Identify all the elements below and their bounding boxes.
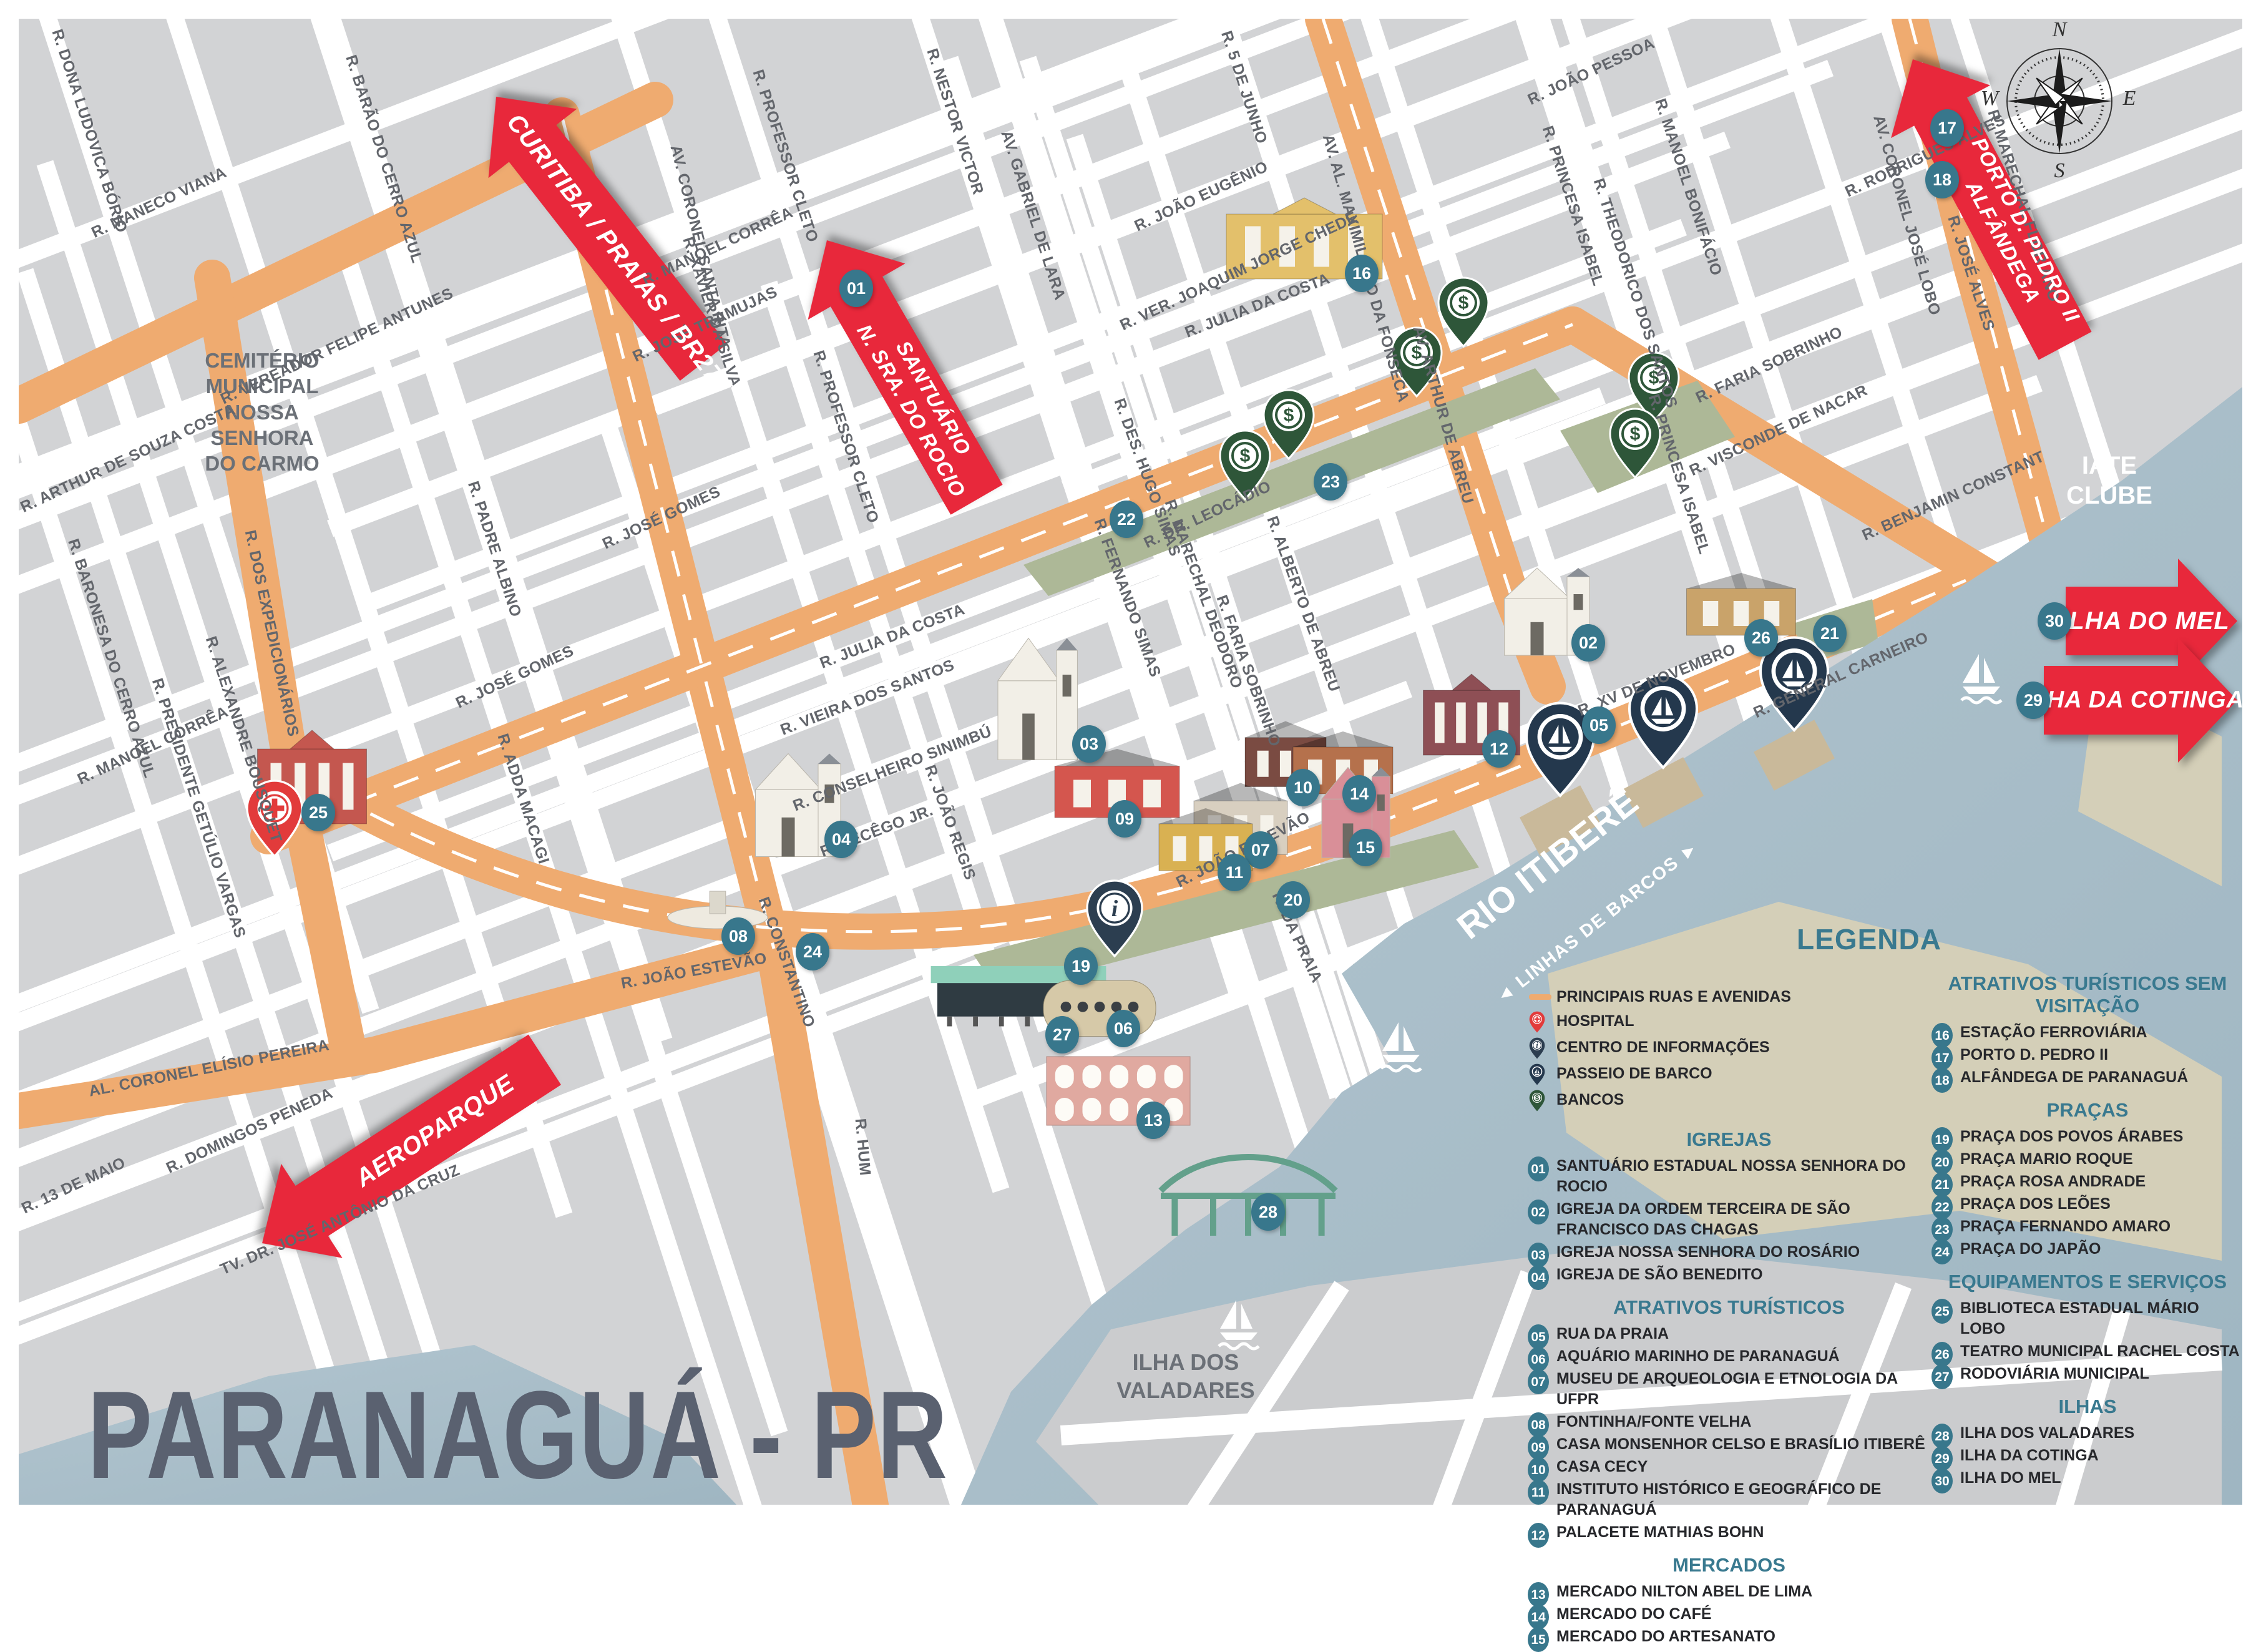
- legend-heading: MERCADOS: [1528, 1554, 1930, 1576]
- legend-item-label: CASA CECY: [1556, 1458, 1648, 1475]
- legend-item-12: 12PALACETE MATHIAS BOHN: [1528, 1522, 1930, 1543]
- marker-25: 25: [301, 794, 335, 831]
- road-icon: [1528, 992, 1556, 1001]
- legend-item-11: 11INSTITUTO HISTÓRICO E GEOGRÁFICO DE PA…: [1528, 1479, 1930, 1520]
- legend-item-label: ILHA DO MEL: [1960, 1469, 2061, 1487]
- legend-column-1: IGREJAS01SANTUÁRIO ESTADUAL NOSSA SENHOR…: [1528, 1117, 1930, 1649]
- legend-symbol-label: CENTRO DE INFORMAÇÕES: [1556, 1037, 1770, 1058]
- legend-symbol-label: HOSPITAL: [1556, 1010, 1634, 1032]
- legend-symbol-row: $BANCOS: [1528, 1087, 1927, 1112]
- legend-heading: IGREJAS: [1528, 1128, 1930, 1151]
- legend-item-number: 22: [1931, 1195, 1953, 1219]
- legend-item-19: 19PRAÇA DOS POVOS ÁRABES: [1931, 1127, 2244, 1147]
- marker-18: 18: [1925, 161, 1959, 198]
- legend-item-number: 30: [1931, 1469, 1953, 1493]
- legend-item-label: MUSEU DE ARQUEOLOGIA E ETNOLOGIA DA UFPR: [1556, 1370, 1897, 1408]
- marker-30: 30: [2038, 602, 2071, 640]
- marker-11: 11: [1218, 854, 1251, 891]
- legend-item-label: CASA MONSENHOR CELSO E BRASÍLIO ITIBERÊ: [1556, 1435, 1925, 1453]
- legend-item-29: 29ILHA DA COTINGA: [1931, 1445, 2244, 1466]
- legend-symbol-label: BANCOS: [1556, 1089, 1624, 1110]
- legend-item-number: 15: [1528, 1627, 1549, 1652]
- svg-text:N: N: [2052, 18, 2068, 41]
- marker-14: 14: [1342, 775, 1376, 813]
- legend-item-number: 13: [1528, 1582, 1549, 1607]
- legend-item-label: PRAÇA DO JAPÃO: [1960, 1240, 2101, 1258]
- legend-item-number: 25: [1931, 1299, 1953, 1324]
- svg-text:i: i: [1111, 896, 1118, 922]
- legend-item-number: 07: [1528, 1369, 1549, 1394]
- legend-item-label: ALFÂNDEGA DE PARANAGUÁ: [1960, 1068, 2188, 1086]
- paranagua-tourist-map: NESW$$$$$$i PARANAGUÁ - PR CEMITÉRIO MUN…: [0, 0, 2261, 1523]
- legend-item-label: MERCADO DO CAFÉ: [1556, 1605, 1712, 1623]
- info-icon: i: [1528, 1035, 1556, 1060]
- legend-item-label: TEATRO MUNICIPAL RACHEL COSTA: [1960, 1342, 2240, 1360]
- legend-item-number: 20: [1931, 1150, 1953, 1175]
- legend-item-number: 05: [1528, 1324, 1549, 1349]
- legend-item-label: PRAÇA DOS LEÕES: [1960, 1195, 2111, 1213]
- legend-item-label: PRAÇA DOS POVOS ÁRABES: [1960, 1128, 2183, 1145]
- legend-heading: EQUIPAMENTOS E SERVIÇOS: [1931, 1271, 2244, 1293]
- marker-03: 03: [1072, 725, 1106, 763]
- legend-heading: ATRATIVOS TURÍSTICOS: [1528, 1296, 1930, 1319]
- svg-text:$: $: [1284, 405, 1294, 426]
- legend-item-number: 03: [1528, 1243, 1549, 1268]
- legend-item-number: 04: [1528, 1265, 1549, 1290]
- map-title: PARANAGUÁ - PR: [87, 1364, 949, 1507]
- legend-item-14: 14MERCADO DO CAFÉ: [1528, 1604, 1930, 1625]
- legend-item-20: 20PRAÇA MARIO ROQUE: [1931, 1149, 2244, 1170]
- legend-item-number: 12: [1528, 1523, 1549, 1548]
- legend-item-09: 09CASA MONSENHOR CELSO E BRASÍLIO ITIBER…: [1528, 1434, 1930, 1455]
- legend-title: LEGENDA: [1797, 922, 1941, 956]
- legend-symbol-row: HOSPITAL: [1528, 1009, 1927, 1034]
- svg-text:$: $: [1240, 446, 1251, 466]
- legend-item-06: 06AQUÁRIO MARINHO DE PARANAGUÁ: [1528, 1346, 1930, 1367]
- legend-item-25: 25BIBLIOTECA ESTADUAL MÁRIO LOBO: [1931, 1298, 2244, 1339]
- legend-item-number: 16: [1931, 1023, 1953, 1048]
- legend-item-01: 01SANTUÁRIO ESTADUAL NOSSA SENHORA DO RO…: [1528, 1156, 1930, 1197]
- marker-26: 26: [1744, 619, 1778, 657]
- svg-text:$: $: [1535, 1095, 1539, 1102]
- legend-item-label: ILHA DA COTINGA: [1960, 1447, 2099, 1464]
- legend-symbol-label: PASSEIO DE BARCO: [1556, 1063, 1712, 1084]
- svg-text:$: $: [1630, 424, 1641, 444]
- marker-12: 12: [1482, 730, 1516, 768]
- legend-item-label: ESTAÇÃO FERROVIÁRIA: [1960, 1024, 2147, 1041]
- svg-text:i: i: [1536, 1041, 1538, 1050]
- legend-item-label: ILHA DOS VALADARES: [1960, 1424, 2134, 1442]
- legend-item-number: 29: [1931, 1446, 1953, 1471]
- legend-item-22: 22PRAÇA DOS LEÕES: [1931, 1194, 2244, 1215]
- legend-item-number: 24: [1931, 1239, 1953, 1264]
- legend-item-17: 17PORTO D. PEDRO II: [1931, 1045, 2244, 1065]
- arrow-label-ilha-da-cotinga: ILHA DA COTINGA: [2024, 685, 2244, 715]
- legend-item-label: RUA DA PRAIA: [1556, 1325, 1669, 1342]
- marker-28: 28: [1251, 1193, 1285, 1231]
- marker-17: 17: [1930, 109, 1964, 147]
- legend-item-label: IGREJA DE SÃO BENEDITO: [1556, 1266, 1763, 1283]
- legend-item-number: 28: [1931, 1424, 1953, 1449]
- legend-item-label: PRAÇA ROSA ANDRADE: [1960, 1173, 2146, 1190]
- marker-27: 27: [1045, 1016, 1079, 1053]
- hospital-icon: [1528, 1009, 1556, 1034]
- legend-symbols: PRINCIPAIS RUAS E AVENIDASHOSPITALiCENTR…: [1528, 985, 1927, 1113]
- legend-column-2: ATRATIVOS TURÍSTICOS SEM VISITAÇÃO16ESTA…: [1931, 961, 2244, 1490]
- legend-symbol-label: PRINCIPAIS RUAS E AVENIDAS: [1556, 986, 1791, 1007]
- legend-item-21: 21PRAÇA ROSA ANDRADE: [1931, 1171, 2244, 1192]
- legend-symbol-row: PRINCIPAIS RUAS E AVENIDAS: [1528, 986, 1927, 1007]
- legend-item-label: INSTITUTO HISTÓRICO E GEOGRÁFICO DE PARA…: [1556, 1480, 1881, 1518]
- marker-04: 04: [824, 821, 858, 858]
- legend-item-24: 24PRAÇA DO JAPÃO: [1931, 1239, 2244, 1259]
- marker-22: 22: [1110, 501, 1143, 538]
- legend-item-label: IGREJA NOSSA SENHORA DO ROSÁRIO: [1556, 1243, 1860, 1261]
- marker-01: 01: [839, 270, 873, 307]
- legend-item-number: 10: [1528, 1457, 1549, 1482]
- marker-21: 21: [1813, 615, 1847, 652]
- legend-item-label: IGREJA DA ORDEM TERCEIRA DE SÃO FRANCISC…: [1556, 1200, 1850, 1238]
- legend-item-08: 08FONTINHA/FONTE VELHA: [1528, 1412, 1930, 1432]
- legend-item-27: 27RODOVIÁRIA MUNICIPAL: [1931, 1364, 2244, 1384]
- marker-08: 08: [721, 917, 755, 955]
- marker-05: 05: [1582, 706, 1616, 744]
- legend-item-label: FONTINHA/FONTE VELHA: [1556, 1413, 1752, 1430]
- svg-text:$: $: [1458, 293, 1469, 313]
- marker-15: 15: [1349, 829, 1382, 866]
- legend-item-number: 18: [1931, 1068, 1953, 1093]
- svg-text:S: S: [2054, 159, 2065, 182]
- marker-23: 23: [1314, 463, 1347, 501]
- legend-item-label: MERCADO DO ARTESANATO: [1556, 1628, 1775, 1645]
- svg-text:W: W: [1981, 87, 2000, 110]
- marker-20: 20: [1276, 881, 1310, 919]
- legend-heading: PRAÇAS: [1931, 1099, 2244, 1122]
- legend-item-13: 13MERCADO NILTON ABEL DE LIMA: [1528, 1581, 1930, 1602]
- legend-item-04: 04IGREJA DE SÃO BENEDITO: [1528, 1264, 1930, 1285]
- legend-item-28: 28ILHA DOS VALADARES: [1931, 1423, 2244, 1444]
- legend-item-number: 08: [1528, 1412, 1549, 1437]
- legend-item-label: BIBLIOTECA ESTADUAL MÁRIO LOBO: [1960, 1299, 2199, 1337]
- legend-heading: ILHAS: [1931, 1395, 2244, 1418]
- marker-09: 09: [1108, 800, 1141, 838]
- legend-item-number: 21: [1931, 1172, 1953, 1197]
- legend-item-10: 10CASA CECY: [1528, 1457, 1930, 1477]
- arrow-label-ilha-do-mel: ILHA DO MEL: [2061, 605, 2230, 637]
- legend-item-05: 05RUA DA PRAIA: [1528, 1324, 1930, 1344]
- legend-item-number: 09: [1528, 1435, 1549, 1460]
- legend-symbol-row: PASSEIO DE BARCO: [1528, 1061, 1927, 1086]
- marker-16: 16: [1345, 255, 1379, 292]
- marker-24: 24: [796, 933, 829, 970]
- legend-item-label: MERCADO NILTON ABEL DE LIMA: [1556, 1583, 1812, 1600]
- legend-item-number: 14: [1528, 1605, 1549, 1630]
- legend-item-30: 30ILHA DO MEL: [1931, 1468, 2244, 1488]
- legend-item-number: 19: [1931, 1127, 1953, 1152]
- legend-item-number: 26: [1931, 1342, 1953, 1367]
- marker-06: 06: [1106, 1010, 1140, 1047]
- legend-item-26: 26TEATRO MUNICIPAL RACHEL COSTA: [1931, 1341, 2244, 1362]
- marker-02: 02: [1571, 624, 1605, 662]
- boat-icon: [1528, 1061, 1556, 1086]
- legend-item-07: 07MUSEU DE ARQUEOLOGIA E ETNOLOGIA DA UF…: [1528, 1369, 1930, 1410]
- marker-10: 10: [1286, 769, 1320, 806]
- marker-13: 13: [1136, 1102, 1170, 1139]
- legend-item-number: 02: [1528, 1200, 1549, 1224]
- legend-item-label: PORTO D. PEDRO II: [1960, 1046, 2108, 1063]
- legend-item-number: 27: [1931, 1364, 1953, 1389]
- legend-symbol-row: iCENTRO DE INFORMAÇÕES: [1528, 1035, 1927, 1060]
- legend-item-02: 02IGREJA DA ORDEM TERCEIRA DE SÃO FRANCI…: [1528, 1199, 1930, 1240]
- legend-item-label: SANTUÁRIO ESTADUAL NOSSA SENHORA DO ROCI…: [1556, 1157, 1906, 1195]
- legend-item-number: 01: [1528, 1156, 1549, 1181]
- legend-item-18: 18ALFÂNDEGA DE PARANAGUÁ: [1931, 1067, 2244, 1088]
- legend-item-16: 16ESTAÇÃO FERROVIÁRIA: [1931, 1022, 2244, 1043]
- legend-item-label: RODOVIÁRIA MUNICIPAL: [1960, 1365, 2149, 1382]
- legend-item-23: 23PRAÇA FERNANDO AMARO: [1931, 1216, 2244, 1237]
- legend-item-label: PALACETE MATHIAS BOHN: [1556, 1523, 1764, 1541]
- legend-item-label: PRAÇA FERNANDO AMARO: [1960, 1218, 2171, 1235]
- legend-item-number: 11: [1528, 1480, 1549, 1505]
- legend-heading: ATRATIVOS TURÍSTICOS SEM VISITAÇÃO: [1931, 972, 2244, 1017]
- bank-icon: $: [1528, 1087, 1556, 1112]
- svg-text:E: E: [2122, 87, 2136, 110]
- legend-item-15: 15MERCADO DO ARTESANATO: [1528, 1626, 1930, 1647]
- legend-item-label: AQUÁRIO MARINHO DE PARANAGUÁ: [1556, 1347, 1840, 1365]
- marker-29: 29: [2016, 682, 2050, 719]
- marker-19: 19: [1064, 947, 1098, 985]
- legend-item-number: 23: [1931, 1217, 1953, 1242]
- legend-item-label: PRAÇA MARIO ROQUE: [1960, 1150, 2133, 1168]
- legend-item-03: 03IGREJA NOSSA SENHORA DO ROSÁRIO: [1528, 1242, 1930, 1263]
- iate-clube-label: IATE CLUBE: [2066, 451, 2152, 511]
- legend-item-number: 06: [1528, 1347, 1549, 1372]
- ilha-dos-valadares-label: ILHA DOS VALADARES: [1116, 1348, 1254, 1404]
- legend-item-number: 17: [1931, 1045, 1953, 1070]
